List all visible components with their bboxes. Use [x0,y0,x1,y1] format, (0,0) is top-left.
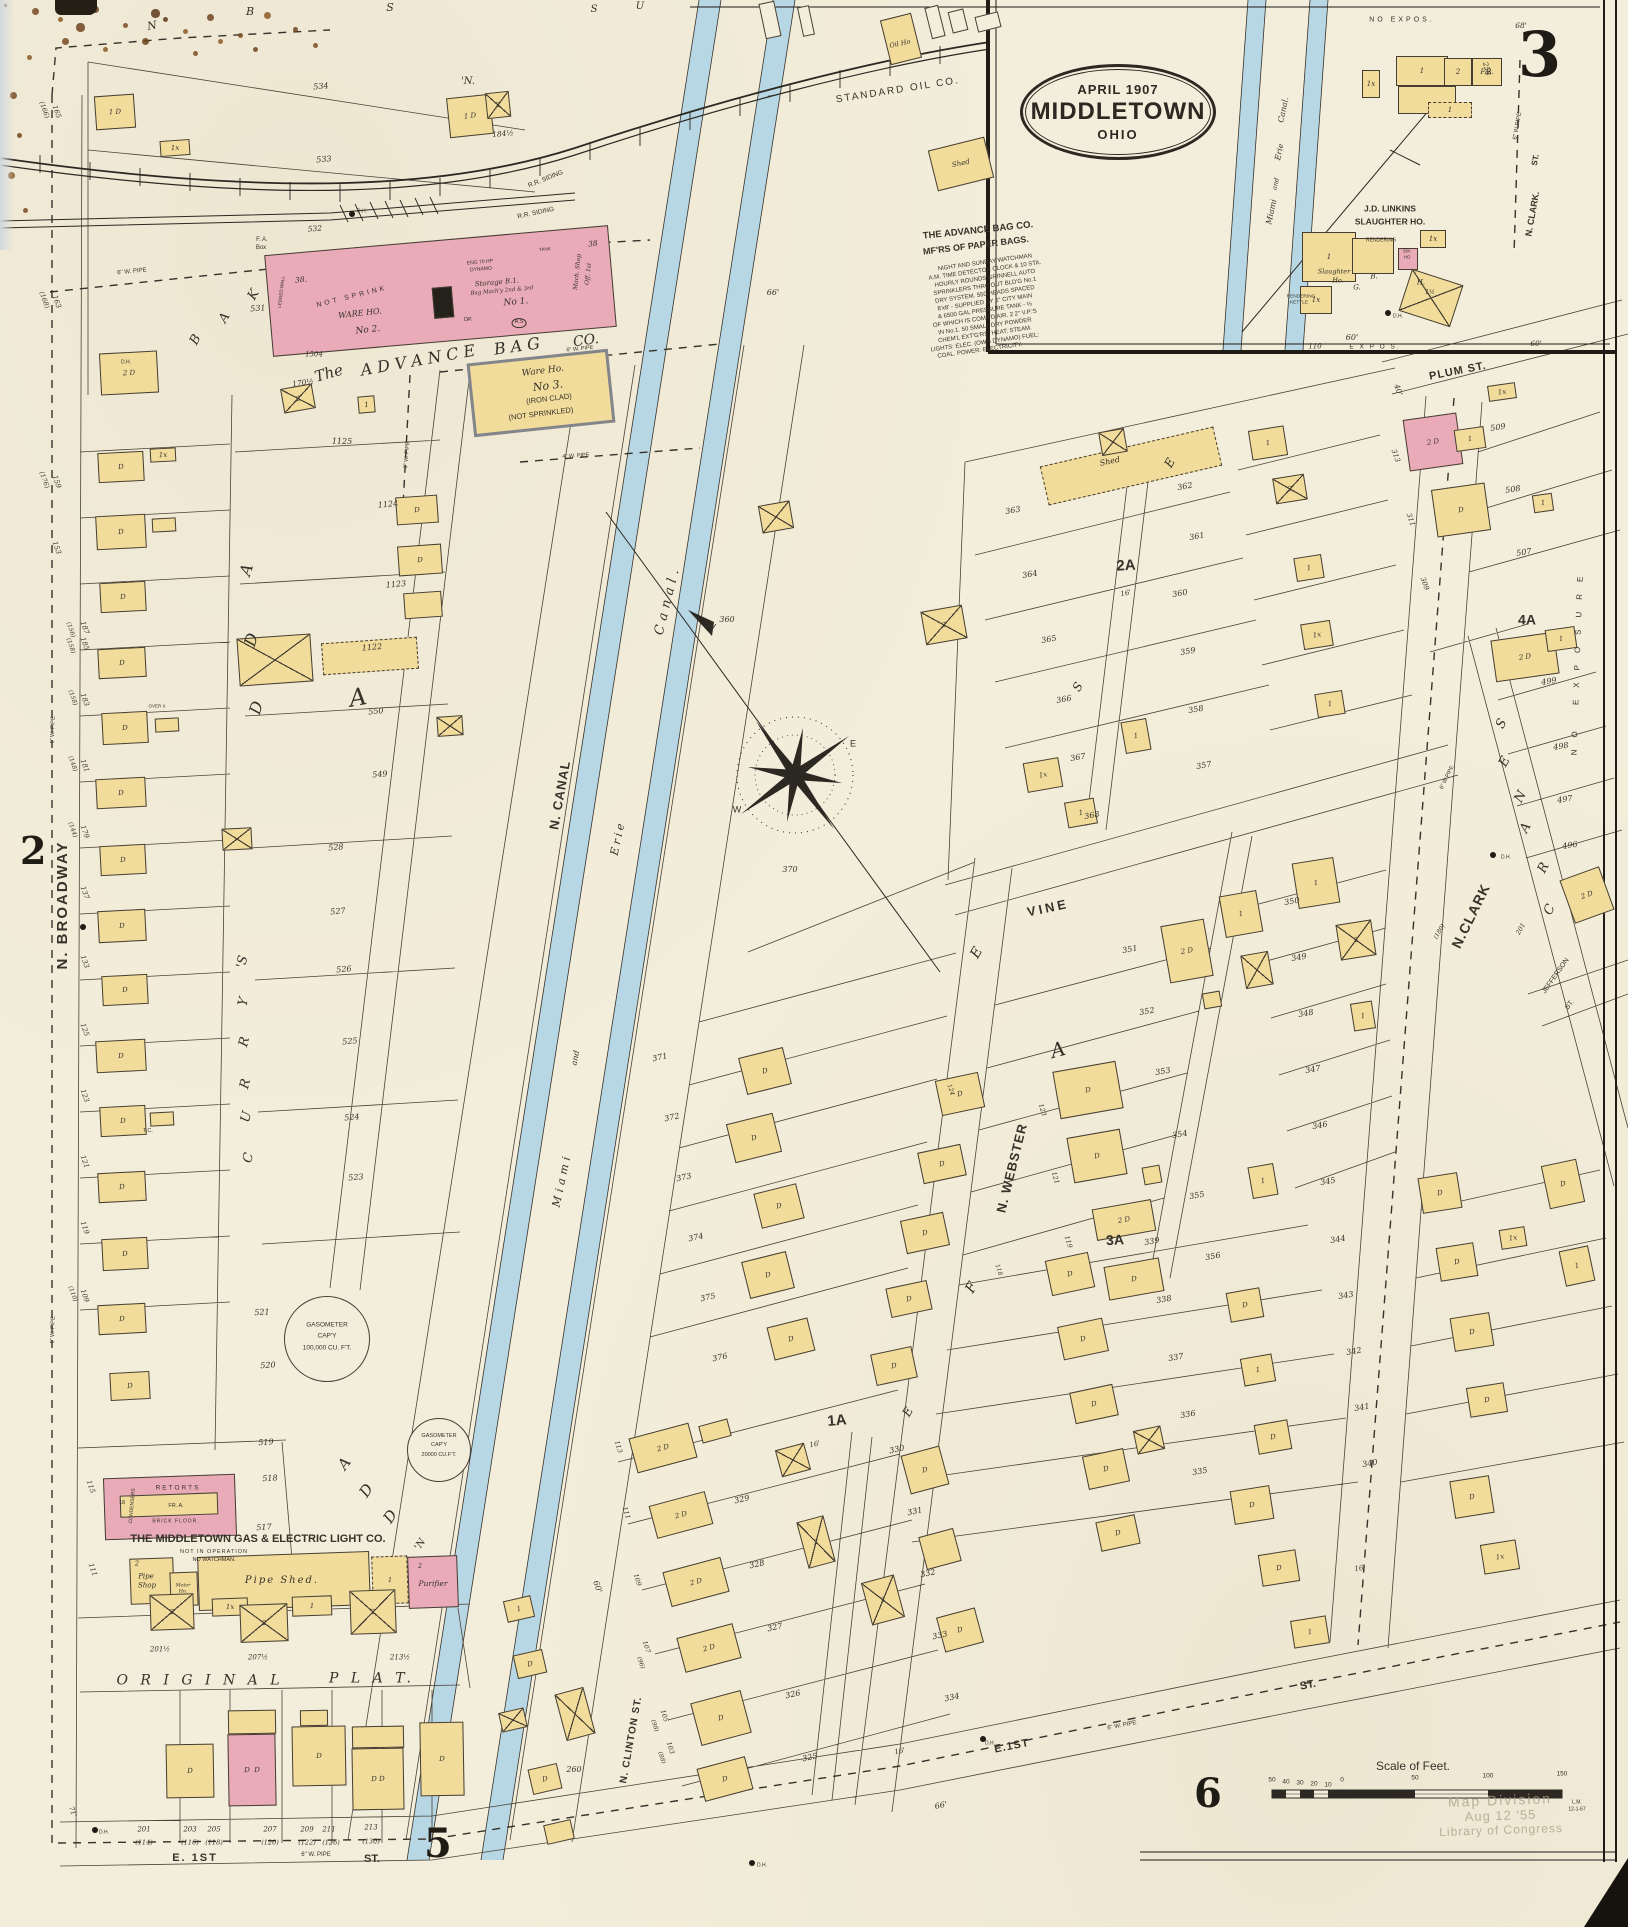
map-label: 550 [368,707,384,717]
map-label: NOT SPRINK [316,285,388,310]
map-label: Mach. Shop [573,254,583,291]
map-label: GASOMETER [421,1434,456,1440]
map-label: 358 [1188,705,1205,716]
map-label: (110) [66,1285,77,1302]
map-label: 115 [84,1479,95,1494]
sanborn-map-sheet: 1 D1x2 D1 D212D1xDDDDDDDDDDDDDDDD121x212… [0,0,1628,1927]
map-label: and [570,1050,581,1066]
map-label: Box [256,245,266,251]
map-label: 527 [330,907,346,917]
map-label: F [963,1280,981,1296]
map-label: 213½ [390,1654,410,1661]
map-label: Miami [551,1152,574,1208]
map-label: 360 [1172,589,1189,600]
map-label: Slaughter [1318,269,1351,276]
map-label: 201 [1515,922,1527,936]
map-label: 519 [258,1438,274,1447]
map-label: 499 [1541,677,1557,687]
map-label: O R I G I N A L [116,1674,283,1689]
map-label: Erie [609,820,628,857]
map-label: 20000 CU.F'T. [422,1453,457,1459]
map-label: N. CLARK. [1524,191,1541,237]
map-label: (176) [38,471,50,490]
map-label: 336 [1180,1410,1197,1421]
map-label: B [188,332,205,347]
map-label: 121 [78,1154,89,1169]
map-label: 528 [328,843,344,853]
map-label: (158) [66,689,77,706]
map-title-oval: APRIL 1907 MIDDLETOWN OHIO [1020,64,1216,160]
map-label: 309 [1418,576,1429,591]
map-label: Canal. [653,563,684,636]
map-label: 201½ [150,1646,170,1653]
map-label: 71' [67,1806,78,1819]
map-label: 326 [785,1689,802,1700]
map-label: P L A T. [329,1672,415,1687]
map-label: K [246,287,263,302]
map-label: 367 [1070,753,1087,764]
map-label: (NOT SPRINKLED) [508,406,574,422]
map-label: 355 [1189,1191,1206,1202]
map-label: 350 [1284,897,1301,908]
map-label: 213 [364,1824,377,1831]
map-label: D [247,699,267,716]
map-label: NO WATCHMAN. [192,1558,235,1564]
map-label: 111 [621,1506,631,1520]
paper-stain-blotch [55,0,97,15]
map-label: F. A. [256,237,268,243]
map-label: 211 [322,1826,335,1833]
map-label: 517 [256,1523,272,1532]
map-label: 370 [782,866,797,874]
map-label: 344 [1330,1235,1347,1246]
map-label: (144) [66,821,77,838]
map-label: 372 [664,1112,681,1123]
map-label: S [386,2,394,14]
sheet-number-3: 3 [1518,18,1561,91]
map-label: 6" W. PIPE [117,267,147,276]
map-label: No 1. [503,297,528,309]
map-label: 4" W. PIPE [562,453,589,461]
map-label: VINE [1026,897,1070,919]
map-label: 6" W. PIPE [51,1316,58,1343]
map-label: 347 [1305,1065,1322,1076]
map-label: 359 [1180,647,1197,658]
map-label: 329 [734,1494,751,1505]
map-label: RETORTS [156,1486,201,1493]
map-label: 60' [1530,340,1542,348]
map-label: 1½ [1425,290,1435,296]
map-label: HO [1404,256,1411,261]
map-label: Meter [176,1583,191,1588]
map-label: SLAUGHTER HO. [1355,218,1425,227]
map-label: A.S [512,318,527,328]
map-label: No 3. [532,378,563,393]
map-label: R.R. SIDING [527,170,564,190]
map-label: 109 [632,1573,642,1587]
map-label: 170½ [292,378,314,389]
map-label: S [1070,680,1085,693]
map-label: 207 [263,1826,276,1833]
map-label: NO EXPOSURE [1570,565,1585,756]
map-label: 4A [1518,613,1536,628]
map-label: N. WEBSTER [994,1122,1029,1214]
map-label: (148) [66,755,77,772]
map-label: N [1512,789,1529,805]
map-label: 348 [1298,1009,1315,1020]
map-label: ST. [1531,154,1541,167]
map-label: T.C. [143,1129,153,1135]
map-label: 133 [78,954,89,969]
map-label: 351 [1122,945,1139,956]
map-label: D.H. [1501,855,1511,860]
map-label: 109 [78,1288,89,1303]
map-label: 330 [889,1444,906,1455]
labels-layer: NO EXPOS.68'258J.D. LINKINSSLAUGHTER HO.… [0,0,1628,1927]
map-label: 375 [700,1292,717,1303]
map-label: TANK [539,247,551,253]
map-label: 521 [254,1308,270,1317]
map-label: 507 [1516,548,1532,558]
map-label: 179 [78,824,89,839]
map-label: 368 [1084,811,1101,822]
map-label: 50 [1268,1778,1275,1785]
map-label: 153 [50,540,61,555]
map-label: 60' [591,1580,603,1595]
map-label: Purifier [419,1580,448,1588]
map-label: Shop [138,1582,156,1589]
map-label: CAP'Y [431,1443,447,1449]
map-label: 364 [1022,570,1039,581]
map-label: C [1542,902,1559,917]
map-label: R.R. SIDING [517,207,555,221]
map-label: 150 [1557,1772,1568,1779]
map-label: 60' [1346,334,1358,342]
map-date: APRIL 1907 [1077,82,1158,97]
map-label: Off. 1st [585,263,594,286]
map-label: R [1536,860,1553,875]
map-label: 123 [1037,1103,1047,1117]
map-label: RENDERING [1287,294,1316,299]
map-label: 339 [1144,1237,1161,1248]
map-label: N. CANAL [547,759,573,830]
map-label: 6" W. PIPE [301,1852,330,1858]
map-label: 163 [50,294,61,309]
map-label: A [217,311,234,326]
map-label: 66' [934,1801,948,1812]
map-label: ST. [1299,1679,1317,1693]
map-label: 18 [119,1501,125,1507]
map-label: H. [1417,279,1425,286]
map-label: 341 [1354,1403,1371,1414]
map-label: 183 [78,692,89,707]
map-label: A [335,1455,354,1473]
map-label: 2 [135,1561,139,1568]
map-label: D.H. [1393,314,1403,319]
map-label: E [1162,456,1177,470]
map-label: B. [1370,273,1377,280]
map-label: 38. [295,276,308,285]
map-label: and [1271,177,1280,190]
map-label: 349 [1291,953,1308,964]
map-label: 523 [348,1173,364,1183]
map-label: A [1048,1038,1067,1062]
map-label: B A G [493,335,541,358]
map-label: 205 [207,1826,220,1833]
map-label: 0 [1340,1778,1344,1785]
map-label: 524 [344,1113,360,1123]
map-label: 203 [183,1826,196,1833]
map-label: D.H. [99,1830,109,1835]
map-label: NO EXPOS. [1369,16,1435,23]
map-label: 6" W.PIPE [1440,765,1456,790]
map-label: (98) [649,1719,659,1733]
map-label: D.H. [357,209,367,214]
map-label: (114) [135,1840,152,1847]
map-label: C [241,1151,257,1164]
map-label: 366 [1056,695,1073,706]
map-label: D.H. [121,360,131,365]
map-label: 181 [78,758,89,773]
map-label: 311 [1404,512,1415,527]
map-label: 354 [1172,1130,1189,1141]
map-label: 165 [50,104,61,119]
map-label: 531 [250,304,266,314]
map-label: 498 [1553,742,1569,752]
map-label: N.CLARK [1449,881,1493,950]
map-label: Ho. [1332,278,1344,285]
map-label: 365 [1041,635,1058,646]
map-label: D [381,1508,401,1527]
map-label: (180) [1433,923,1447,940]
map-label: 121 [1050,1171,1060,1185]
map-label: 125 [78,1022,89,1037]
map-label: E [968,945,986,961]
map-label: D [357,1482,377,1501]
map-label: N. CLINTON ST. [619,1696,645,1785]
map-label: 327 [767,1622,784,1633]
map-label: 1125 [332,438,352,446]
map-label: D [242,631,262,648]
map-label: 1123 [385,580,406,590]
map-label: Erie [1274,143,1286,161]
map-label: 107 [641,1640,651,1654]
map-label: 1122 [361,643,382,653]
map-label: 352 [1139,1007,1156,1018]
map-label: FR. A. [168,1504,183,1510]
map-label: 371 [652,1052,669,1063]
map-label: 328 [749,1559,766,1570]
map-label: E [1497,755,1514,770]
map-label: S [1494,717,1510,731]
map-label: WARE HO. [338,308,382,321]
map-label: 103 [665,1741,675,1755]
map-label: 119 [1063,1235,1073,1249]
map-label: 137 [78,885,89,900]
map-label: 363 [1005,506,1022,517]
map-label: 6" W. PIPE [1107,1720,1137,1732]
map-label: ← [764,89,775,100]
map-label: KETTLE [1290,300,1308,305]
map-label: 332 [920,1568,937,1579]
map-label: E [850,739,856,748]
adjacent-sheet-5: 5 [424,1820,452,1867]
map-label: A [237,562,257,578]
map-label: 496 [1562,841,1578,851]
map-label: RENDERING [1366,238,1396,243]
map-label: 345 [1320,1177,1337,1188]
map-label: (122) [298,1840,315,1847]
map-label: 'N [413,1537,428,1552]
map-label: 335 [1192,1467,1209,1478]
map-label: (116) [181,1840,198,1847]
map-label: 340 [1362,1459,1379,1470]
map-label: DYNAMO [470,266,492,273]
map-label: 258 [1481,62,1492,77]
map-label: (96) [635,1656,645,1670]
map-label: U [239,1110,255,1124]
map-label: 2 [418,1564,422,1570]
map-label: 40 [1282,1780,1289,1787]
map-label: N. BROADWAY [55,841,71,970]
map-label: Pipe Shed. [245,1576,319,1587]
map-label: Y [236,996,251,1008]
map-label: JEFFERSON [1541,957,1571,995]
map-label: 346 [1312,1121,1329,1132]
map-label: 30 [1296,1781,1303,1788]
map-label: 201 [137,1826,150,1833]
map-label: 497 [1557,795,1573,805]
map-label: 187 [78,620,89,635]
map-label: THE MIDDLETOWN GAS & ELECTRIC LIGHT CO. [130,1534,385,1546]
map-label: A [347,684,368,712]
map-label: 113 [613,1440,623,1454]
map-label: E [900,1405,915,1419]
map-label: G. [1353,284,1361,291]
map-label: 526 [336,965,352,975]
map-label: 159 [50,474,61,489]
map-label: 362 [1177,482,1194,493]
map-label: 518 [262,1474,278,1483]
map-label: 1A [827,1412,847,1429]
map-label: 209 [300,1826,313,1833]
map-label: 119 [78,1220,89,1235]
map-label: 184½ [492,129,514,139]
map-label: 361 [1189,532,1206,543]
map-label: B [246,6,254,18]
map-label: 333 [932,1630,949,1641]
library-of-congress-stamp: Map Division Aug 12 '55 Library of Congr… [1407,1789,1593,1840]
map-label: 2A [1116,558,1136,575]
map-label: E X P O S. [1349,345,1400,352]
map-label: 356 [1205,1252,1222,1263]
map-label: 100 [1483,1774,1494,1781]
map-label: R [237,1036,253,1049]
map-label: 3A [1106,1232,1125,1248]
map-label: 38 [588,240,598,249]
map-label: 343 [1338,1291,1355,1302]
map-label: 1124 [377,500,398,510]
map-label: 337 [1168,1353,1185,1364]
torn-edge [0,0,14,250]
map-label: 50 [1411,1776,1418,1783]
map-label: GASOMETER [306,1323,348,1330]
map-label: Ho. [179,1589,188,1594]
map-label: 10 [1324,1783,1331,1790]
map-label: 338 [1156,1295,1173,1306]
map-label: 123 [78,1088,89,1103]
map-state: OHIO [1097,127,1138,142]
map-label: N [705,621,717,634]
map-label: 'N. [461,77,475,88]
map-label: 16' [1120,589,1132,598]
map-label: OP. [464,318,473,324]
map-label: E.1ST [993,1738,1030,1756]
map-label: CAP'Y [318,1334,337,1341]
map-label: 325 [802,1752,819,1763]
map-label: (158) [64,637,75,654]
map-label: (118) [205,1840,222,1847]
map-label: 8" W. PIPE [404,441,412,468]
map-label: 534 [313,82,329,92]
map-label: 16' [894,1747,906,1756]
map-label: (156) [64,621,75,638]
map-label: The [313,362,345,385]
map-label: 373 [676,1172,693,1183]
map-label: 260 [566,1766,581,1774]
map-label: 334 [944,1692,961,1703]
map-label: 40' [1392,383,1403,397]
map-label: 20 [1310,1782,1317,1789]
map-label: S [591,5,598,16]
map-label: 110 [1308,343,1321,350]
map-label: 118 [993,1264,1003,1277]
map-label: Miami [1265,199,1279,226]
map-label: PLUM ST. [1428,361,1487,383]
map-label: ST. [1564,999,1576,1012]
map-label: 207½ [248,1654,268,1661]
map-label: N [146,19,157,32]
map-label: A [1518,821,1534,836]
map-label: OVER X [148,705,165,710]
map-label: 508 [1505,485,1521,495]
map-label: 374 [688,1232,705,1243]
map-label: BRICK FLOOR. [152,1519,199,1524]
map-label: 353 [1155,1067,1172,1078]
map-label: Pipe [138,1573,154,1580]
map-label: 342 [1346,1347,1363,1358]
map-label: Shed [951,159,970,170]
map-label: 66' [767,289,779,297]
map-label: J.D. LINKINS [1364,205,1416,214]
map-label: 1504 [305,351,323,358]
map-label: STANDARD OIL CO. [835,76,960,106]
map-label: 16' [809,1440,821,1449]
map-label: U [636,2,644,13]
adjacent-sheet-2: 2 [20,828,46,873]
map-label: CONDENSERS [129,1488,137,1524]
map-label: W [733,805,742,814]
map-label: 100,000 CU. F'T. [303,1346,352,1353]
map-label: (130) [362,1839,379,1846]
map-label: D.H. [757,1863,767,1868]
map-label: ST. [364,1854,380,1866]
map-label: A D V A N C E [359,343,476,380]
map-label: (126) [322,1840,339,1847]
adjacent-sheet-6: 6 [1194,1770,1222,1817]
map-label: 'S [235,954,251,970]
map-label: E. 1ST [172,1853,218,1865]
